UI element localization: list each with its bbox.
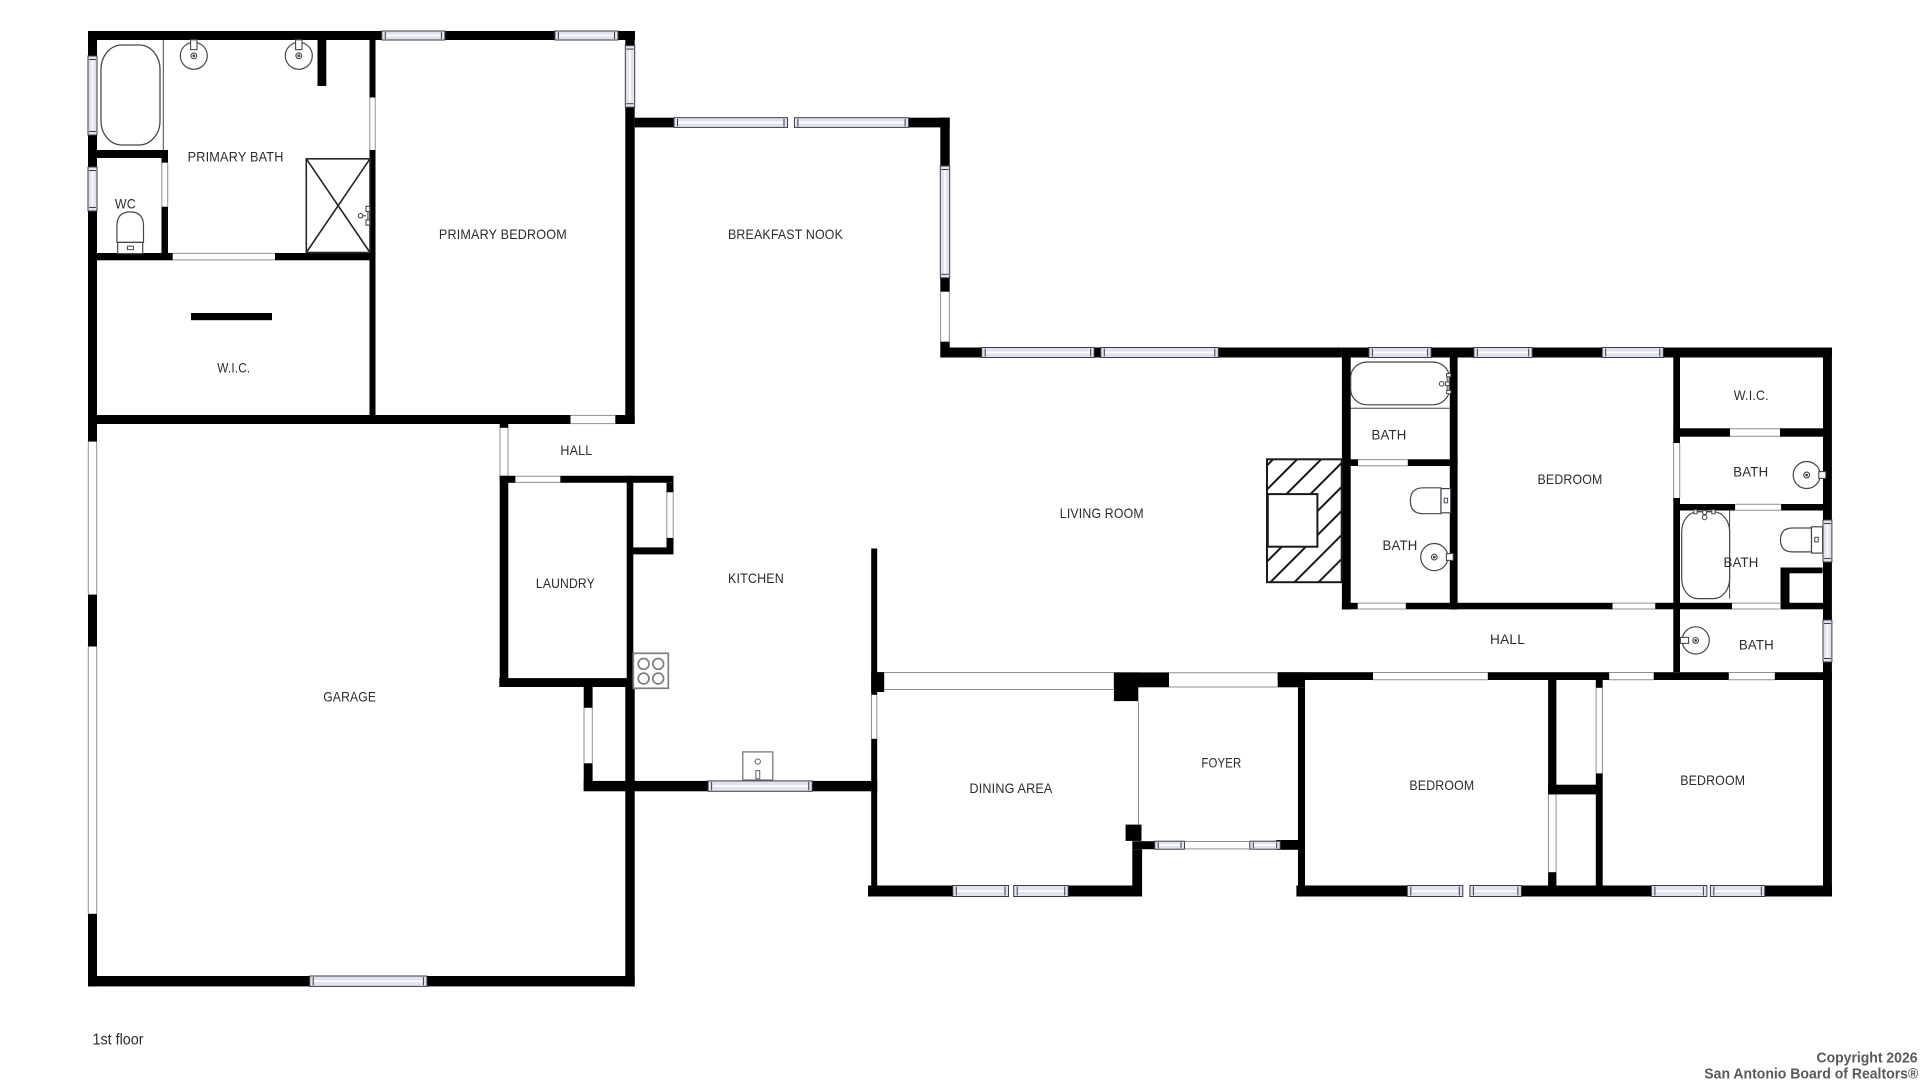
svg-text:W.I.C.: W.I.C. bbox=[217, 360, 250, 376]
svg-text:BATH: BATH bbox=[1372, 427, 1407, 443]
svg-text:BREAKFAST NOOK: BREAKFAST NOOK bbox=[728, 226, 843, 242]
svg-text:Copyright 2026: Copyright 2026 bbox=[1817, 1050, 1918, 1067]
svg-text:PRIMARY BATH: PRIMARY BATH bbox=[188, 148, 284, 164]
svg-text:BEDROOM: BEDROOM bbox=[1680, 772, 1745, 788]
svg-text:W.I.C.: W.I.C. bbox=[1734, 387, 1769, 403]
svg-text:BATH: BATH bbox=[1739, 636, 1774, 652]
svg-text:FOYER: FOYER bbox=[1201, 754, 1241, 770]
svg-text:1st floor: 1st floor bbox=[93, 1031, 145, 1048]
svg-text:BATH: BATH bbox=[1724, 554, 1759, 570]
svg-text:GARAGE: GARAGE bbox=[323, 689, 376, 705]
svg-text:HALL: HALL bbox=[560, 442, 592, 458]
svg-text:DINING AREA: DINING AREA bbox=[970, 780, 1053, 796]
svg-text:LAUNDRY: LAUNDRY bbox=[536, 575, 595, 591]
svg-text:HALL: HALL bbox=[1490, 631, 1525, 647]
svg-text:BEDROOM: BEDROOM bbox=[1538, 471, 1603, 487]
svg-text:LIVING ROOM: LIVING ROOM bbox=[1060, 505, 1144, 521]
svg-text:BEDROOM: BEDROOM bbox=[1409, 777, 1474, 793]
svg-text:San Antonio Board of Realtors®: San Antonio Board of Realtors® bbox=[1704, 1065, 1918, 1080]
svg-text:BATH: BATH bbox=[1383, 537, 1418, 553]
svg-text:KITCHEN: KITCHEN bbox=[728, 570, 784, 586]
svg-text:WC: WC bbox=[115, 196, 136, 212]
svg-text:PRIMARY BEDROOM: PRIMARY BEDROOM bbox=[439, 226, 567, 242]
svg-text:BATH: BATH bbox=[1733, 464, 1768, 480]
